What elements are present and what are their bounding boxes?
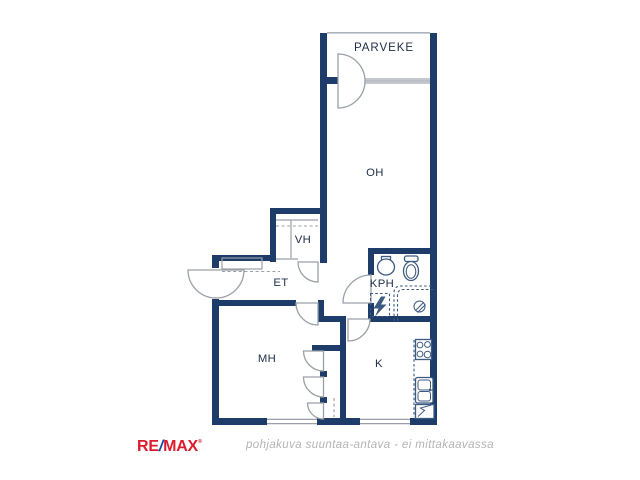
wall-segment [320,77,338,84]
closet-door-icon [308,403,324,419]
kitchen-sink-icon [416,378,435,404]
entry-door-icon [188,270,244,298]
wall-segment [340,316,346,425]
k-door-icon [348,319,370,341]
floorplan-page: PARVEKE OH VH ET KPH MH K pohjakuva suun… [0,0,640,480]
room-label-vh: VH [295,234,312,246]
floor-drain-icon [414,301,426,313]
wall-segment [320,397,327,403]
room-label-oh: OH [366,167,384,179]
floorplan-drawing: PARVEKE OH VH ET KPH MH K pohjakuva suun… [0,0,640,480]
wall-segment [320,33,327,263]
washbasin-icon [378,257,395,276]
closet-door-icon [304,351,324,371]
lightning-bolt-icon [374,297,387,317]
stove-icon [416,340,432,360]
wall-segment [368,248,437,254]
balcony-window-icon [364,79,430,83]
k-window-icon [360,419,410,423]
room-label-kph: KPH [370,278,394,290]
wall-segment [270,208,327,214]
shower-area-icon [394,286,434,321]
closet-door-icon [304,377,324,397]
logo-max: MAX [163,438,198,455]
logo-trademark: ® [198,438,202,445]
wall-segment [212,418,267,425]
remax-logo: RE/MAX® [137,438,202,455]
mh-window-icon [267,419,317,423]
wall-segment [212,300,296,306]
balcony-top-line [327,32,430,34]
wall-segment [212,255,219,268]
walls [212,32,437,425]
wall-segment [430,33,437,425]
logo-re: RE [137,438,159,455]
kph-door-icon [343,275,371,303]
wall-segment [320,371,327,377]
room-label-k: K [375,358,383,370]
wall-segment [368,248,374,275]
vh-door-icon [298,262,318,282]
fridge-icon [416,405,435,419]
wall-segment [270,208,276,262]
wall-segment [312,345,346,351]
wall-segment [212,299,219,425]
toilet-icon [404,256,419,281]
room-label-parveke: PARVEKE [354,41,414,54]
disclaimer-caption: pohjakuva suuntaa-antava - ei mittakaava… [245,439,494,451]
room-label-mh: MH [258,353,276,365]
room-label-et: ET [273,277,288,289]
mh-door-icon [296,303,318,325]
balcony-door-icon [338,54,365,108]
kitchen-fixtures [414,340,434,419]
